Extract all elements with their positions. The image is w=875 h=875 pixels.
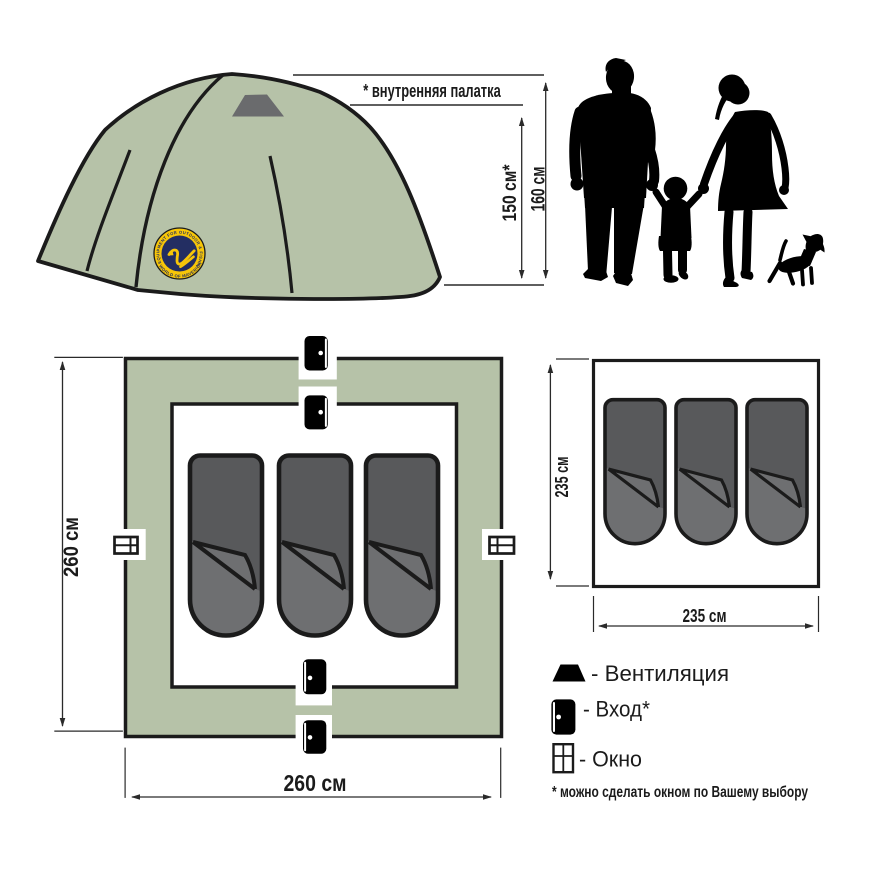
- svg-text:235 см: 235 см: [552, 457, 572, 498]
- svg-text:- Вход*: - Вход*: [583, 697, 650, 722]
- svg-text:235 см: 235 см: [683, 606, 727, 626]
- svg-text:260 см: 260 см: [59, 517, 83, 577]
- svg-text:160 см: 160 см: [529, 167, 550, 212]
- svg-text:* можно сделать окном по Вашем: * можно сделать окном по Вашему выбору: [552, 784, 808, 801]
- svg-text:150 см*: 150 см*: [500, 164, 521, 221]
- svg-text:260 см: 260 см: [284, 770, 347, 796]
- svg-text:- Вентиляция: - Вентиляция: [591, 661, 729, 686]
- svg-text:* внутренняя палатка: * внутренняя палатка: [363, 80, 501, 101]
- svg-text:- Окно: - Окно: [579, 747, 642, 772]
